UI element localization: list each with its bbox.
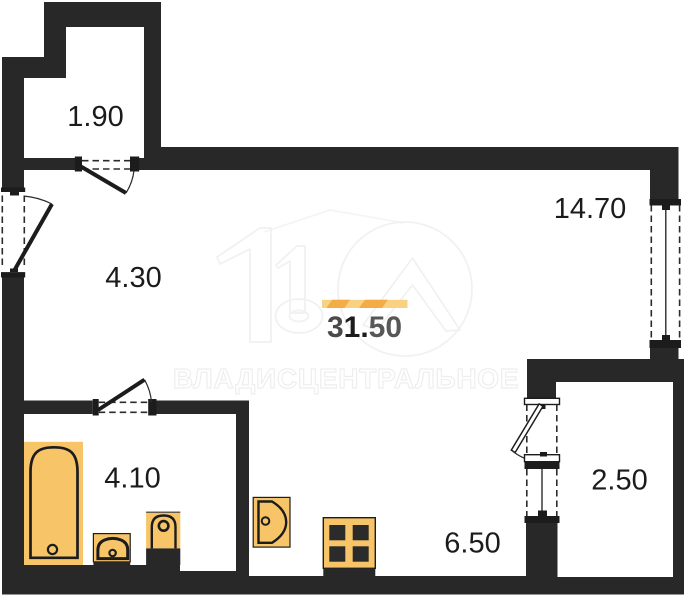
svg-text:31.50: 31.50	[327, 311, 402, 344]
svg-text:14.70: 14.70	[554, 193, 627, 225]
svg-text:1.90: 1.90	[67, 101, 123, 133]
svg-text:2.50: 2.50	[591, 465, 647, 497]
svg-text:ВЛАДИСЦЕНТРАЛЬНОЕ: ВЛАДИСЦЕНТРАЛЬНОЕ	[173, 363, 519, 394]
svg-text:6.50: 6.50	[444, 528, 500, 560]
svg-text:4.10: 4.10	[104, 463, 160, 495]
svg-text:4.30: 4.30	[105, 262, 161, 294]
